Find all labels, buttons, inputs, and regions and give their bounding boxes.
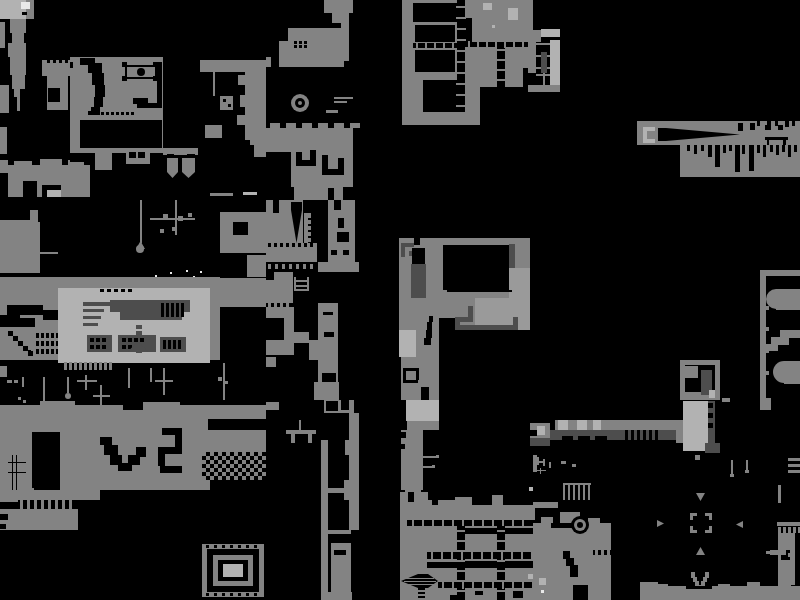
world-map-canvas[interactable] bbox=[0, 0, 800, 600]
game-map-screen bbox=[0, 0, 800, 600]
